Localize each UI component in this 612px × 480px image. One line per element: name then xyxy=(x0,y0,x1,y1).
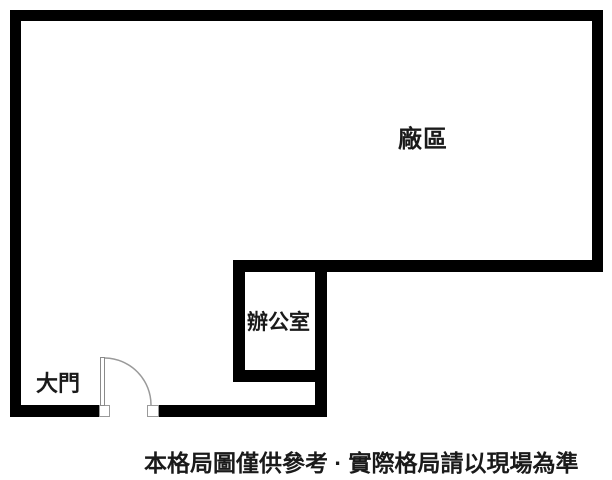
main-door-label: 大門 xyxy=(36,371,80,396)
factory-area-label: 廠區 xyxy=(398,126,448,154)
wall-office-bottom xyxy=(233,370,327,382)
door-jamb-left-icon xyxy=(100,406,110,417)
wall-office-left xyxy=(233,260,245,382)
wall-top xyxy=(10,10,603,21)
wall-bottom-left xyxy=(10,405,99,417)
door-leaf-icon xyxy=(101,358,105,406)
door-swing-arc-icon xyxy=(105,358,151,405)
wall-bottom-right xyxy=(151,405,327,417)
wall-left xyxy=(10,10,21,417)
wall-right xyxy=(592,10,603,272)
wall-mid-divider xyxy=(233,260,603,272)
floorplan-canvas: 廠區 辦公室 大門 本格局圖僅供參考 · 實際格局請以現場為準 xyxy=(0,0,612,480)
disclaimer-caption: 本格局圖僅供參考 · 實際格局請以現場為準 xyxy=(144,444,578,478)
office-label: 辦公室 xyxy=(247,311,310,335)
wall-office-right xyxy=(315,260,327,417)
